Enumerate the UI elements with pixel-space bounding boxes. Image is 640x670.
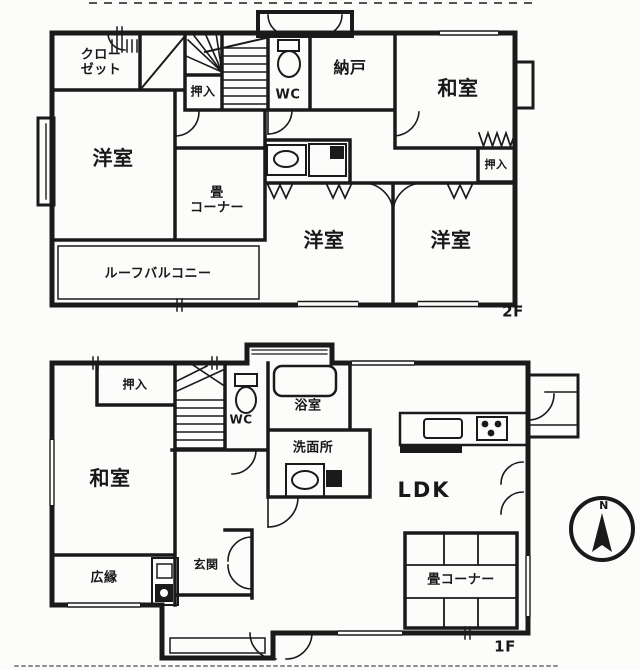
room-label-wc-2f: WC	[276, 89, 301, 104]
washbasin-icon-1f	[286, 464, 342, 497]
room-label-yoshitsu-left-2f: 洋室	[93, 147, 134, 169]
room-label-oshiire-side-2f: 押入	[485, 159, 508, 171]
room-label-roof-balcony: ルーフバルコニー	[105, 268, 212, 283]
room-label-washitsu-1f: 和室	[90, 467, 131, 489]
room-label-nando-2f: 納戸	[333, 59, 366, 77]
room-label-genkan-1f: 玄関	[193, 558, 218, 571]
floor-1f-walls	[52, 345, 578, 658]
windows-1f	[48, 350, 533, 638]
toilet-icon-1f	[235, 374, 257, 413]
module-tick-marks	[93, 27, 470, 639]
room-label-washitsu-2f: 和室	[438, 77, 479, 99]
room-label-closet-2f: クロー ゼット	[81, 48, 122, 77]
room-label-tatami-corner-2f: 畳 コーナー	[190, 186, 244, 215]
toilet-icon-2f	[278, 40, 300, 77]
room-label-hiroen-1f: 広縁	[90, 572, 117, 587]
plan-linework	[0, 0, 640, 670]
room-label-oshiire-top-2f: 押入	[190, 85, 215, 98]
kitchen-counter	[400, 413, 528, 453]
compass-north-label: N	[599, 500, 609, 512]
room-label-senmenjo-1f: 洗面所	[293, 442, 334, 457]
north-arrow-icon	[592, 513, 612, 552]
water-heater-icon	[326, 470, 342, 487]
door-arcs-1f	[228, 394, 554, 659]
stove-icon	[477, 417, 507, 440]
stairs-1f-icon	[175, 363, 223, 448]
washbasin-icon-2f	[267, 145, 306, 175]
windows-2f	[298, 29, 498, 309]
room-label-bath-1f: 浴室	[294, 400, 321, 415]
room-label-tatami-corner-1f: 畳コーナー	[427, 574, 495, 589]
room-label-oshiire-1f: 押入	[122, 378, 147, 391]
bathtub-icon	[274, 366, 336, 396]
room-label-yoshitsu-center-2f: 洋室	[304, 229, 345, 251]
kitchen-sink-icon	[424, 419, 462, 438]
room-label-ldk-1f: LDK	[397, 479, 450, 503]
room-label-wc-1f: WC	[229, 413, 252, 426]
floor-label-2f: 2F	[502, 304, 524, 321]
floor-plan-document: クロー ゼット 押入 WC 納戸 和室 押入 洋室 畳 コーナー 洋室 洋室 ル…	[0, 0, 640, 670]
floor-label-1f: 1F	[494, 639, 516, 656]
room-label-yoshitsu-right-2f: 洋室	[431, 229, 472, 251]
laundry-space-2f	[309, 144, 346, 176]
